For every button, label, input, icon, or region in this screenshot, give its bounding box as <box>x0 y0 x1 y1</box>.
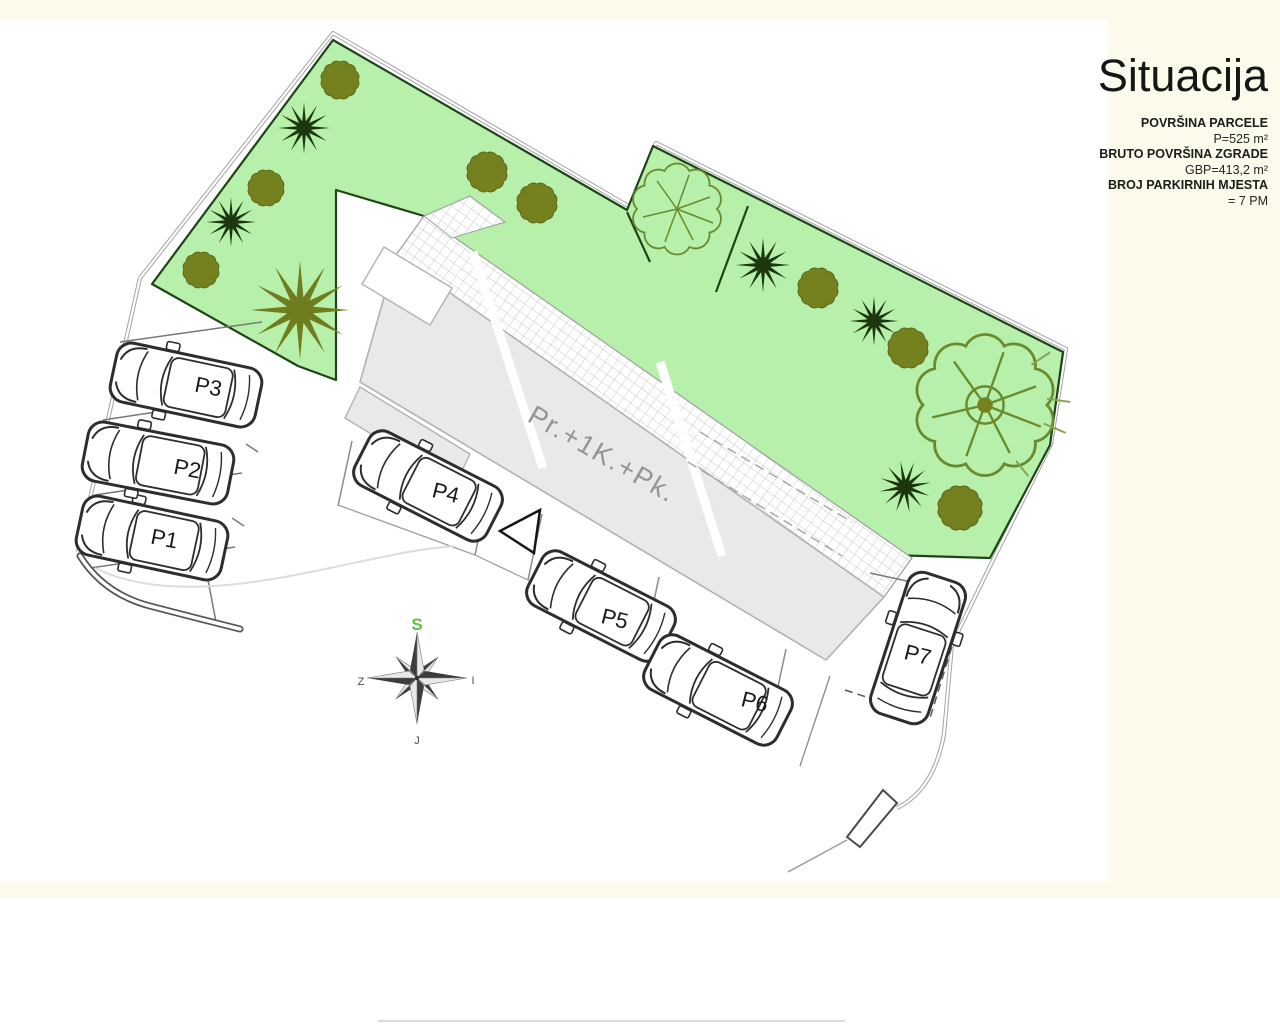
plot-info: POVRŠINA PARCELE P=525 m² BRUTO POVRŠINA… <box>938 116 1268 209</box>
info-value: P=525 m² <box>938 132 1268 148</box>
info-label: BROJ PARKIRNIH MJESTA <box>938 178 1268 194</box>
compass-east-label: I <box>471 675 474 687</box>
tree-icon <box>938 486 982 530</box>
parking-label-p3: P3 <box>193 372 224 402</box>
car-p6 <box>634 622 801 759</box>
page-title: Situacija <box>938 50 1268 102</box>
car-p3 <box>106 331 267 438</box>
compass-south-label: J <box>414 735 420 747</box>
info-label: BRUTO POVRŠINA ZGRADE <box>938 147 1268 163</box>
tree-icon <box>183 252 219 288</box>
tree-icon <box>467 152 507 192</box>
parking-label-p1: P1 <box>149 524 180 554</box>
compass-west-label: Z <box>358 676 365 688</box>
compass-north-label: S <box>411 615 422 634</box>
tree-icon <box>321 61 359 99</box>
boundary-tail <box>788 840 847 872</box>
info-value: GBP=413,2 m² <box>938 163 1268 179</box>
info-label: POVRŠINA PARCELE <box>938 116 1268 132</box>
title-block: Situacija POVRŠINA PARCELE P=525 m² BRUT… <box>938 50 1268 209</box>
tree-icon <box>248 170 284 206</box>
info-value: = 7 PM <box>938 194 1268 210</box>
tree-icon <box>798 268 838 308</box>
entrance-marker <box>500 510 540 553</box>
compass-rose-icon: S Z I J <box>358 615 475 747</box>
tree-icon <box>888 328 928 368</box>
parking-label-p2: P2 <box>172 454 203 484</box>
tree-icon <box>517 183 557 223</box>
utility-box <box>847 790 897 847</box>
